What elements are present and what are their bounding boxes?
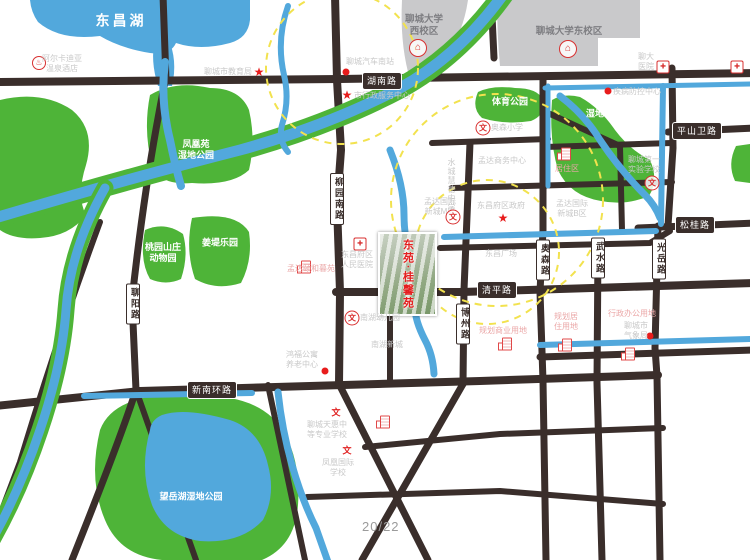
location-map: 东苑·桂馨苑 20/22 东昌湖凤凰苑 湿地公园桃园山庄 动物园姜堤乐园体育公园… — [0, 0, 750, 560]
park-taoyuan-zoo — [143, 226, 186, 282]
bldg-icon — [562, 339, 572, 352]
star-icon: ★ — [498, 212, 509, 224]
hospital-icon: ✚ — [657, 61, 670, 74]
park-jiangdi — [189, 216, 250, 286]
hospital-icon: ✚ — [731, 61, 744, 74]
bldg-icon — [502, 338, 512, 351]
road-label-光岳路: 光岳路 — [652, 239, 666, 280]
project-name: 东苑·桂馨苑 — [400, 239, 416, 310]
dongchang-lake — [30, 0, 250, 54]
hospital-icon: ✚ — [354, 238, 367, 251]
road-label-聊阳路: 聊阳路 — [126, 284, 140, 325]
dot-icon — [343, 69, 350, 76]
park-sports — [475, 87, 543, 122]
star-icon: ★ — [342, 89, 353, 101]
page-counter: 20/22 — [362, 519, 400, 534]
road-label-新南环路: 新南环路 — [188, 382, 236, 398]
hotel-icon: ♨ — [32, 56, 46, 70]
road-label-博州路: 博州路 — [456, 304, 470, 345]
wen-plain-icon: 文 — [331, 409, 340, 418]
wen-icon: 文 — [446, 210, 461, 225]
wen-icon: 文 — [345, 311, 360, 326]
road-label-平山卫路: 平山卫路 — [673, 123, 721, 139]
road-label-柳园南路: 柳园南路 — [330, 173, 344, 225]
school-icon: ⌂ — [409, 39, 427, 57]
bldg-icon — [301, 261, 311, 274]
dot-icon — [605, 88, 612, 95]
dot-icon — [647, 333, 654, 340]
bldg-icon — [380, 416, 390, 429]
school-icon: ⌂ — [559, 40, 577, 58]
dot-icon — [322, 368, 329, 375]
road-label-湖南路: 湖南路 — [363, 73, 401, 89]
park-right-sliver — [731, 144, 750, 183]
project-photo: 东苑·桂馨苑 — [378, 232, 437, 316]
road-label-武水路: 武水路 — [591, 238, 605, 279]
wen-icon: 文 — [645, 176, 660, 191]
wen-icon: 文 — [476, 121, 491, 136]
star-icon: ★ — [254, 66, 265, 78]
road-label-松桂路: 松桂路 — [676, 217, 714, 233]
road-label-奥森路: 奥森路 — [536, 240, 550, 281]
road-label-清平路: 清平路 — [478, 282, 516, 298]
wen-plain-icon: 文 — [342, 447, 351, 456]
bldg-icon — [625, 348, 635, 361]
bldg-icon — [561, 148, 571, 161]
